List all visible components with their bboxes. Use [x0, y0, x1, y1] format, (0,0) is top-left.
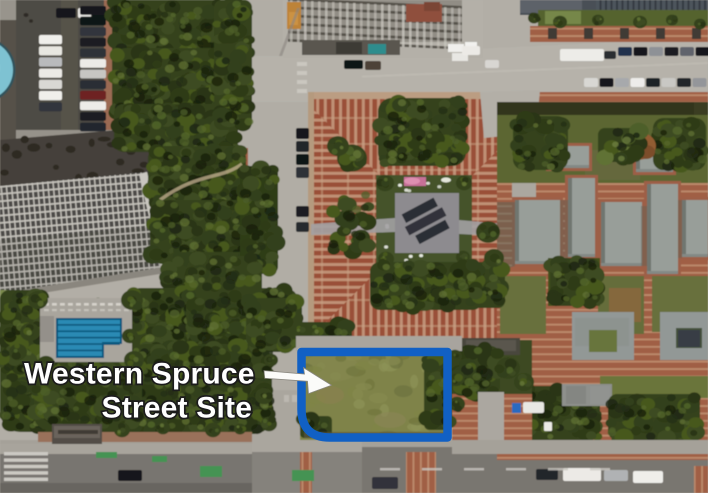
svg-text:Western Spruce: Western Spruce: [24, 358, 255, 391]
svg-text:Street Site: Street Site: [102, 392, 253, 425]
